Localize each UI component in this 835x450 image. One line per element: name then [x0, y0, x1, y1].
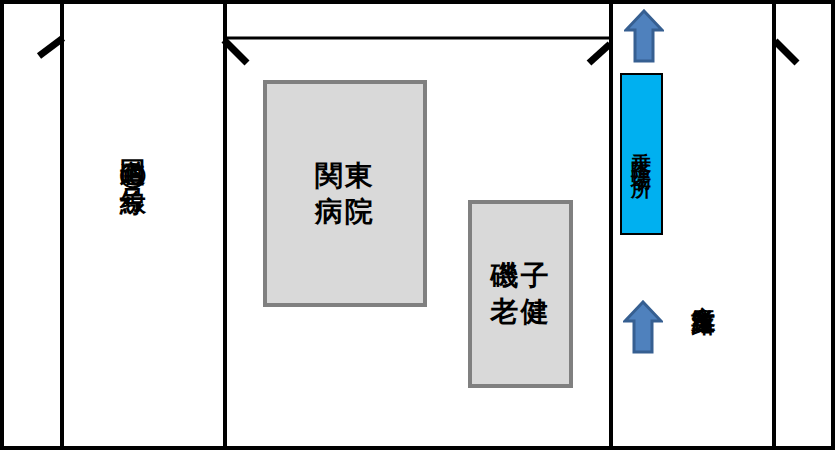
route16-road-label: 国道⑯号線 [119, 139, 146, 170]
up-arrow-icon [624, 9, 664, 63]
kanto-hospital-building: 関東 病院 [263, 80, 427, 307]
road-break-tick [775, 41, 797, 63]
kanto-hospital-label: 関東 病院 [315, 158, 375, 230]
up-arrow-shape [625, 302, 661, 352]
isogo-roken-label: 磯子 老健 [491, 258, 551, 330]
sangyo-road-label: 産業道路 [691, 287, 716, 295]
access-map: 国道⑯号線 関東 病院 磯子 老健 乗降場所 産業道路 [0, 0, 835, 450]
up-arrow-icon [623, 300, 663, 354]
boarding-area-box: 乗降場所 [620, 73, 663, 235]
up-arrow-shape [626, 11, 662, 61]
road-break-tick [224, 40, 247, 63]
boarding-area-label: 乗降場所 [632, 136, 652, 172]
road-break-tick [589, 44, 610, 63]
isogo-roken-building: 磯子 老健 [468, 200, 573, 388]
road-break-tick [39, 38, 63, 56]
